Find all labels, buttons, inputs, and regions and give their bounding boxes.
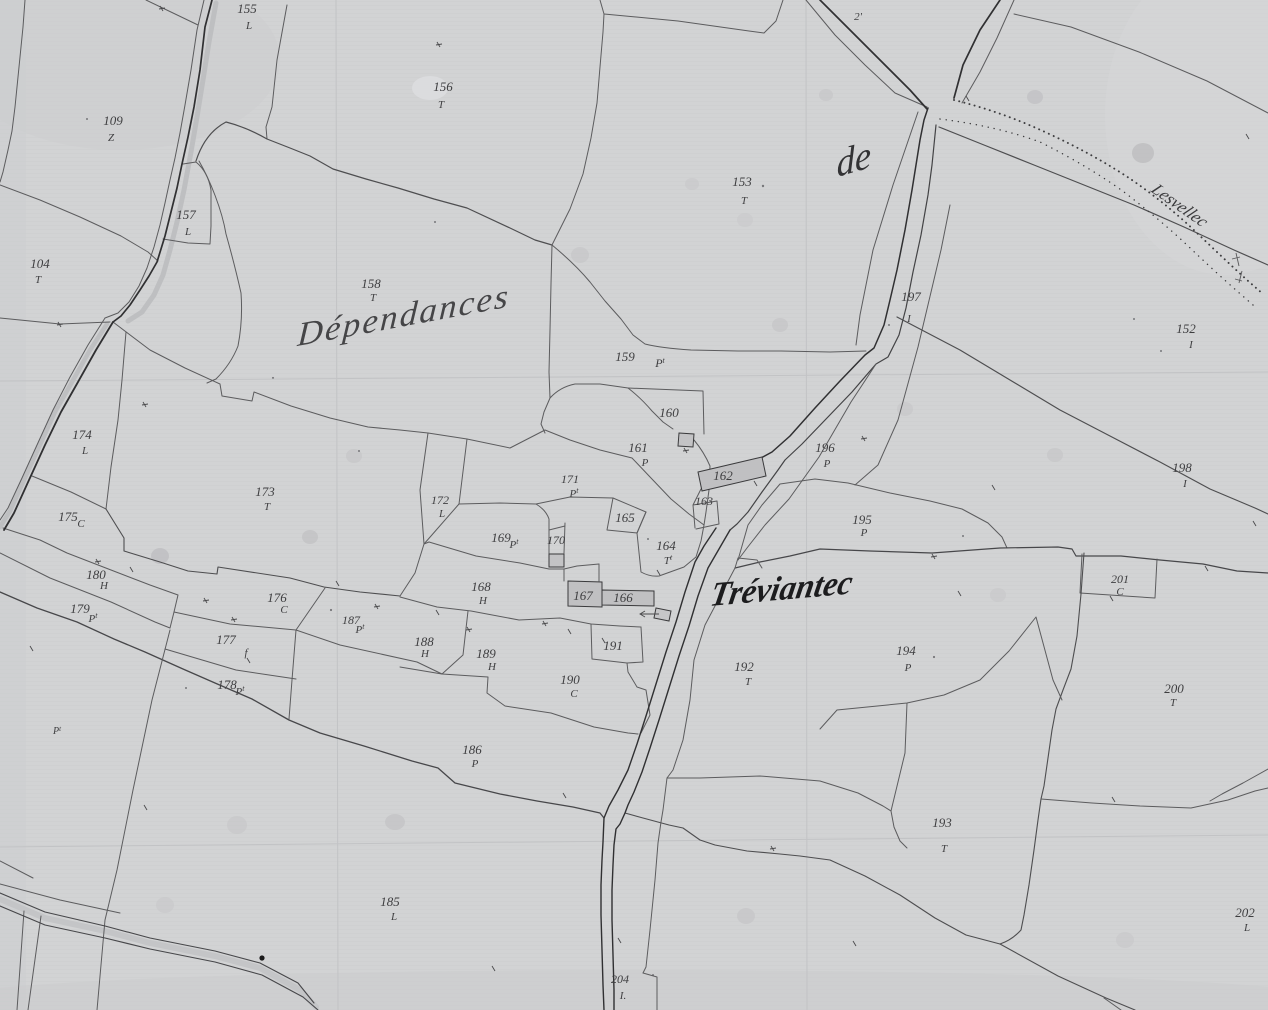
- svg-text:196: 196: [815, 440, 835, 455]
- svg-text:160: 160: [659, 405, 679, 420]
- svg-text:179: 179: [70, 601, 90, 616]
- svg-text:201: 201: [1111, 572, 1129, 586]
- svg-text:109: 109: [103, 113, 123, 128]
- svg-text:204: 204: [611, 972, 629, 986]
- svg-text:176: 176: [267, 590, 287, 605]
- svg-text:172: 172: [431, 493, 449, 507]
- svg-text:2': 2': [854, 11, 863, 23]
- svg-text:193: 193: [932, 815, 952, 830]
- svg-text:T: T: [35, 274, 42, 286]
- svg-text:C: C: [280, 604, 288, 616]
- svg-text:L: L: [245, 20, 252, 32]
- svg-text:168: 168: [471, 579, 491, 594]
- svg-text:188: 188: [414, 634, 434, 649]
- svg-text:T: T: [741, 195, 748, 207]
- svg-text:161: 161: [628, 440, 648, 455]
- svg-text:166: 166: [613, 590, 633, 605]
- svg-text:173: 173: [255, 484, 275, 499]
- svg-text:104: 104: [30, 256, 50, 271]
- svg-text:202: 202: [1235, 905, 1255, 920]
- svg-text:175: 175: [58, 509, 78, 524]
- svg-text:152: 152: [1176, 321, 1196, 336]
- svg-text:153: 153: [732, 174, 752, 189]
- svg-text:197: 197: [901, 289, 921, 304]
- svg-text:P: P: [823, 458, 831, 470]
- svg-text:177: 177: [216, 632, 236, 647]
- svg-text:189: 189: [476, 646, 496, 661]
- svg-text:I.: I.: [619, 990, 626, 1002]
- svg-text:190: 190: [560, 672, 580, 687]
- svg-text:T: T: [370, 292, 377, 304]
- svg-text:P: P: [471, 758, 479, 770]
- svg-text:157: 157: [176, 207, 196, 222]
- svg-text:191: 191: [603, 638, 623, 653]
- svg-text:198: 198: [1172, 460, 1192, 475]
- svg-text:185: 185: [380, 894, 400, 909]
- svg-text:186: 186: [462, 742, 482, 757]
- svg-text:170: 170: [547, 533, 565, 547]
- svg-text:195: 195: [852, 512, 872, 527]
- svg-text:L: L: [184, 226, 191, 238]
- svg-text:H: H: [420, 648, 430, 660]
- svg-text:P: P: [860, 527, 868, 539]
- svg-text:163: 163: [695, 494, 713, 508]
- svg-text:171: 171: [561, 472, 579, 486]
- svg-text:T: T: [264, 501, 271, 513]
- svg-text:194: 194: [896, 643, 916, 658]
- svg-text:192: 192: [734, 659, 754, 674]
- svg-text:165: 165: [615, 510, 635, 525]
- svg-text:167: 167: [573, 588, 593, 603]
- svg-text:T: T: [438, 99, 445, 111]
- svg-text:178: 178: [217, 677, 237, 692]
- svg-text:164: 164: [656, 538, 676, 553]
- svg-text:C: C: [77, 518, 85, 530]
- svg-text:156: 156: [433, 79, 453, 94]
- svg-text:H: H: [487, 661, 497, 673]
- svg-text:L: L: [1243, 922, 1250, 934]
- svg-text:H: H: [478, 595, 488, 607]
- svg-text:162: 162: [713, 468, 733, 483]
- svg-text:155: 155: [237, 1, 257, 16]
- svg-text:169: 169: [491, 530, 511, 545]
- svg-text:T: T: [1170, 697, 1177, 709]
- svg-text:L: L: [390, 911, 397, 923]
- svg-text:200: 200: [1164, 681, 1184, 696]
- svg-text:L: L: [438, 508, 445, 520]
- svg-text:Z: Z: [108, 132, 115, 144]
- svg-text:C: C: [570, 688, 578, 700]
- svg-text:174: 174: [72, 427, 92, 442]
- svg-text:L: L: [81, 445, 88, 457]
- svg-text:T: T: [941, 843, 948, 855]
- svg-text:C: C: [1116, 586, 1124, 598]
- svg-text:H: H: [99, 580, 109, 592]
- svg-text:P: P: [641, 457, 649, 469]
- svg-text:158: 158: [361, 276, 381, 291]
- svg-text:P: P: [904, 662, 912, 674]
- svg-text:159: 159: [615, 349, 635, 364]
- svg-text:T: T: [745, 676, 752, 688]
